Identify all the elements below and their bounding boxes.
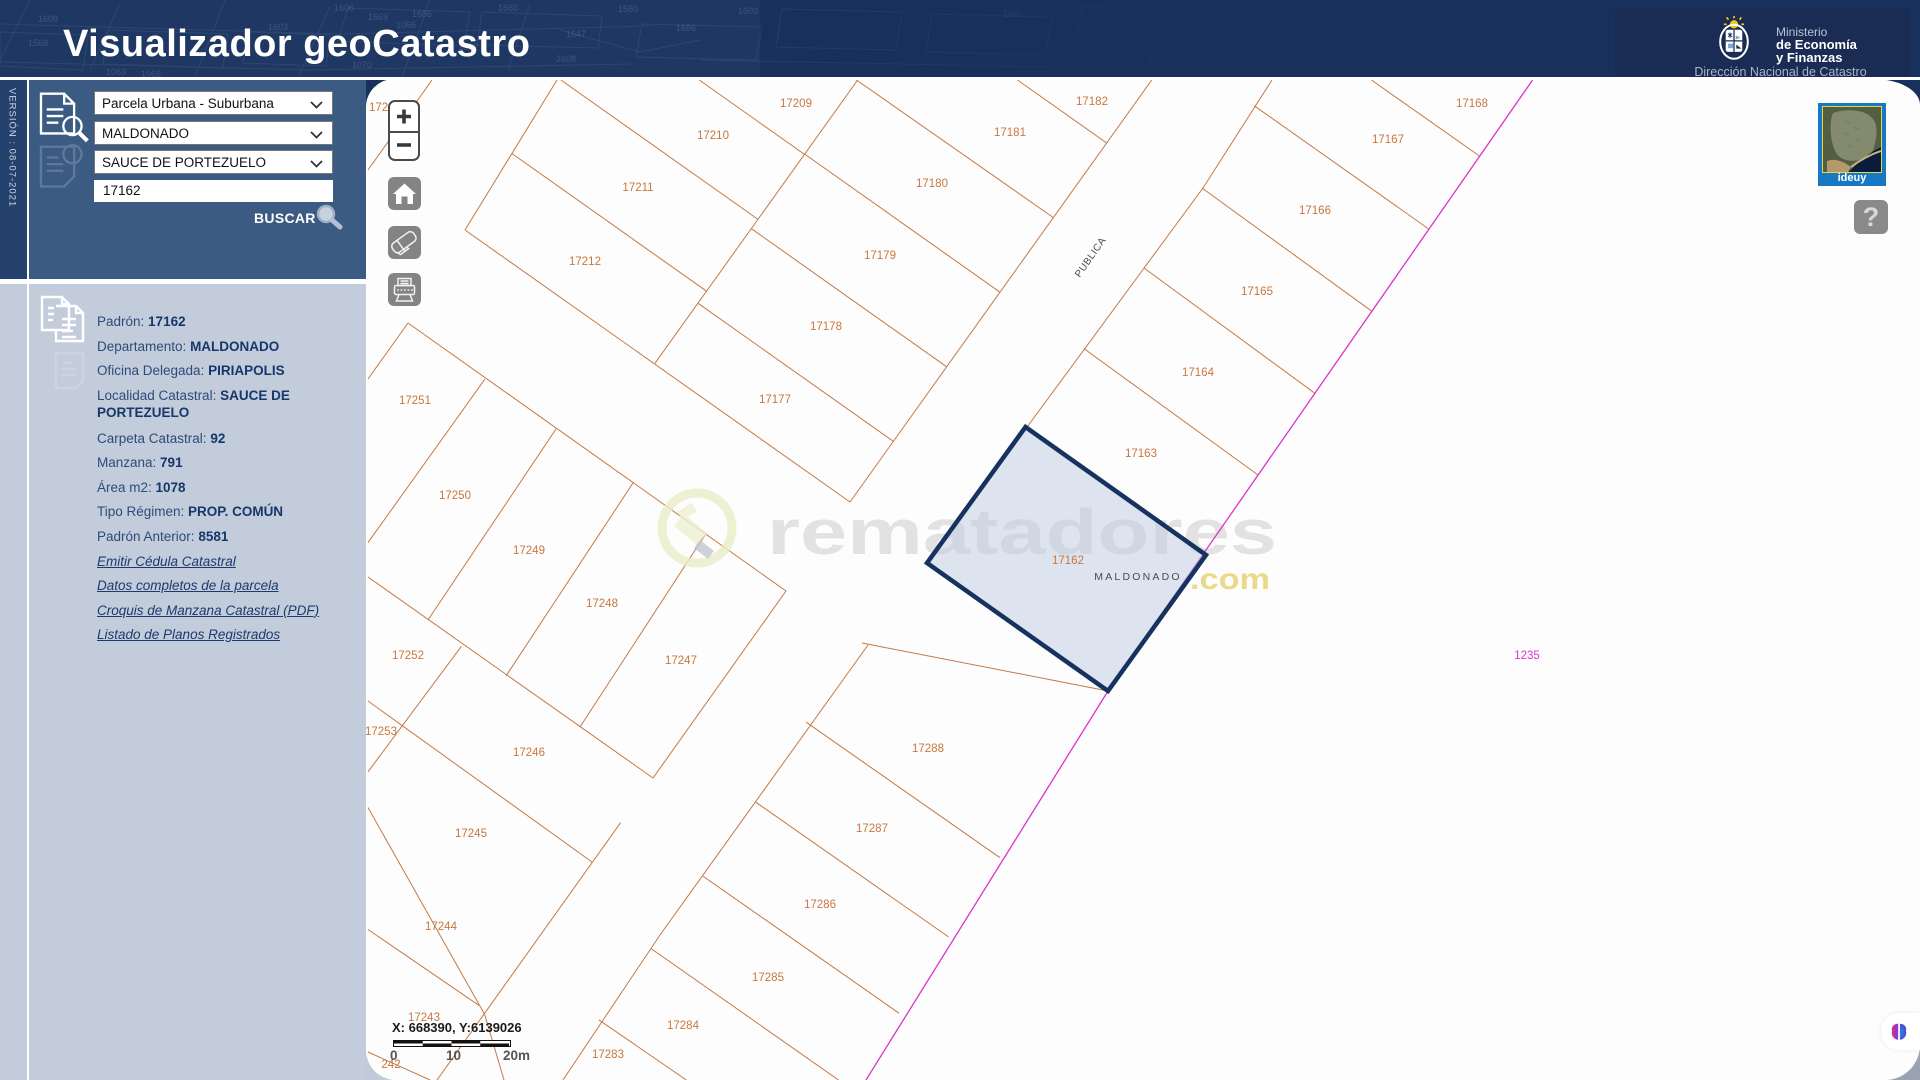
svg-text:17245: 17245: [455, 828, 487, 840]
svg-text:17209: 17209: [780, 98, 812, 110]
svg-text:17181: 17181: [994, 127, 1026, 139]
svg-text:17162: 17162: [1052, 555, 1084, 567]
svg-text:17164: 17164: [1182, 367, 1215, 379]
svg-text:17212: 17212: [569, 256, 601, 268]
svg-text:17286: 17286: [804, 899, 836, 911]
svg-text:17178: 17178: [810, 321, 842, 333]
svg-text:17165: 17165: [1241, 286, 1273, 298]
svg-text:17253: 17253: [366, 726, 397, 738]
svg-text:.com: .com: [1190, 563, 1270, 596]
svg-text:17180: 17180: [916, 178, 948, 190]
svg-text:17285: 17285: [752, 972, 784, 984]
svg-text:17247: 17247: [665, 655, 697, 667]
svg-text:17249: 17249: [513, 545, 545, 557]
svg-text:17283: 17283: [592, 1049, 624, 1061]
svg-text:17246: 17246: [513, 747, 545, 759]
svg-text:17287: 17287: [856, 823, 888, 835]
svg-text:PUBLICA: PUBLICA: [1073, 235, 1109, 279]
svg-text:17248: 17248: [586, 598, 618, 610]
svg-text:17250: 17250: [439, 490, 471, 502]
svg-text:17210: 17210: [697, 130, 729, 142]
svg-text:17166: 17166: [1299, 205, 1331, 217]
svg-text:17177: 17177: [759, 394, 791, 406]
svg-text:17182: 17182: [1076, 96, 1108, 108]
svg-text:17168: 17168: [1456, 98, 1488, 110]
svg-text:17284: 17284: [667, 1020, 700, 1032]
svg-text:17288: 17288: [912, 743, 944, 755]
svg-text:17251: 17251: [399, 395, 431, 407]
svg-text:MALDONADO: MALDONADO: [1094, 571, 1181, 583]
svg-text:17252: 17252: [392, 650, 424, 662]
svg-text:17167: 17167: [1372, 134, 1404, 146]
svg-text:17179: 17179: [864, 250, 896, 262]
svg-text:17211: 17211: [622, 182, 653, 194]
svg-text:1235: 1235: [1514, 650, 1540, 662]
svg-text:17244: 17244: [425, 921, 458, 933]
svg-text:17163: 17163: [1125, 448, 1157, 460]
